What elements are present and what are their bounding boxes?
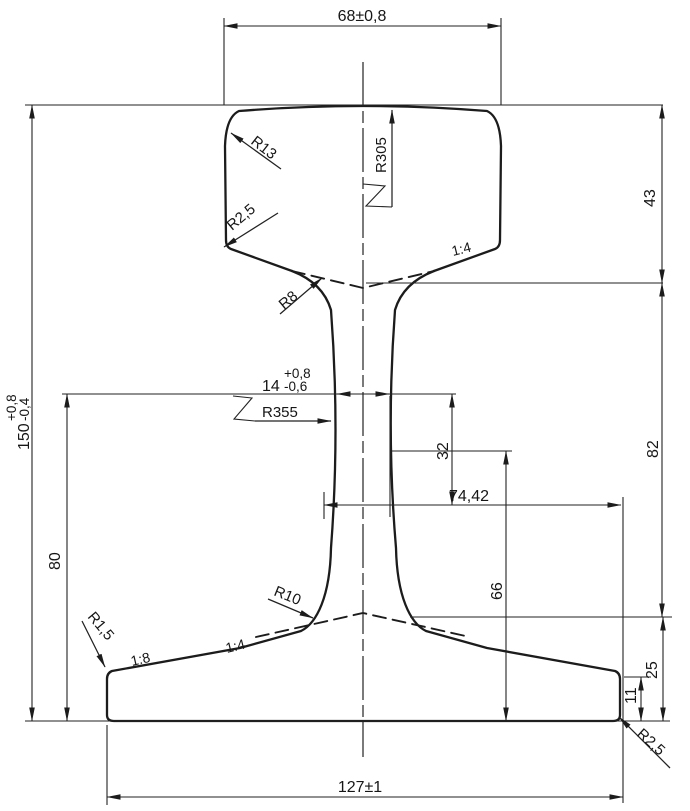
dim-height-group: 150 -0,4 +0,8 — [4, 394, 33, 450]
leader-r305-zigzag — [363, 184, 392, 207]
dim-32-group: 32 — [435, 442, 452, 460]
extension-lines — [25, 18, 672, 805]
radius-head-crown: R305 — [373, 137, 390, 173]
rail-outline — [107, 62, 620, 757]
dim-25-group: 25 — [644, 661, 661, 679]
radius-r2-5-foot-group: R2,5 — [633, 725, 668, 759]
radius-leaders — [82, 110, 670, 768]
drawing-canvas: 68±0,8 150 -0,4 +0,8 80 43 82 25 11 32 6… — [0, 0, 690, 811]
dimension-labels: 68±0,8 150 -0,4 +0,8 80 43 82 25 11 32 6… — [4, 8, 662, 796]
rail-profile-drawing: 68±0,8 150 -0,4 +0,8 80 43 82 25 11 32 6… — [0, 0, 690, 811]
radius-foot-bottom: R2,5 — [633, 725, 668, 759]
radius-web-foot: R10 — [272, 583, 304, 609]
radius-r8-group: R8 — [276, 288, 302, 313]
slope-foot-outer-group: 1:8 — [129, 649, 152, 669]
dim-head-width: 68±0,8 — [338, 8, 387, 25]
dim-foot-flat: 74,42 — [449, 488, 489, 505]
radius-web: R355 — [262, 404, 298, 421]
dim-head-depth: 43 — [642, 189, 659, 207]
radius-r1-5-group: R1,5 — [84, 609, 117, 644]
radius-head-web: R8 — [276, 288, 302, 313]
dim-foot-width: 127±1 — [338, 779, 382, 796]
dim-height-tol-plus: +0,8 — [4, 394, 19, 421]
radius-r305-group: R305 — [373, 137, 390, 173]
slope-foot-inner: 1:4 — [224, 636, 247, 656]
leader-r355-zigzag — [233, 396, 255, 421]
slope-head-under-group: 1:4 — [450, 239, 473, 259]
slope-head-under: 1:4 — [450, 239, 473, 259]
dim-height-tol-minus: -0,4 — [17, 397, 32, 421]
radius-r13-group: R13 — [248, 133, 280, 163]
dim-web-depth: 82 — [645, 440, 662, 458]
dim-66-group: 66 — [489, 582, 506, 600]
slope-foot-inner-group: 1:4 — [224, 636, 247, 656]
dim-lower-height: 66 — [489, 582, 506, 600]
dim-82-group: 82 — [645, 440, 662, 458]
dimension-lines — [32, 26, 663, 797]
dim-web-thk: 14 — [262, 378, 280, 395]
dim-11-group: 11 — [623, 687, 640, 704]
dim-web-lower: 32 — [435, 442, 452, 460]
slope-foot-outer: 1:8 — [129, 649, 152, 669]
radius-head-corner: R13 — [248, 133, 280, 163]
dim-foot-edge: 11 — [623, 687, 640, 704]
dim-foot-depth: 25 — [644, 661, 661, 679]
dim-height: 150 — [16, 423, 33, 450]
dim-80-group: 80 — [47, 552, 64, 570]
slope-labels: 1:4 1:4 1:8 — [129, 239, 473, 669]
dim-web-thk-group: 14 -0,6 +0,8 — [262, 366, 311, 395]
radius-foot-top: R1,5 — [84, 609, 117, 644]
dim-web-thk-tol-plus: +0,8 — [284, 366, 311, 381]
dim-web-mid-height: 80 — [47, 552, 64, 570]
dim-web-thk-tol-minus: -0,6 — [284, 379, 307, 394]
radius-r10-group: R10 — [272, 583, 304, 609]
dim-43-group: 43 — [642, 189, 659, 207]
